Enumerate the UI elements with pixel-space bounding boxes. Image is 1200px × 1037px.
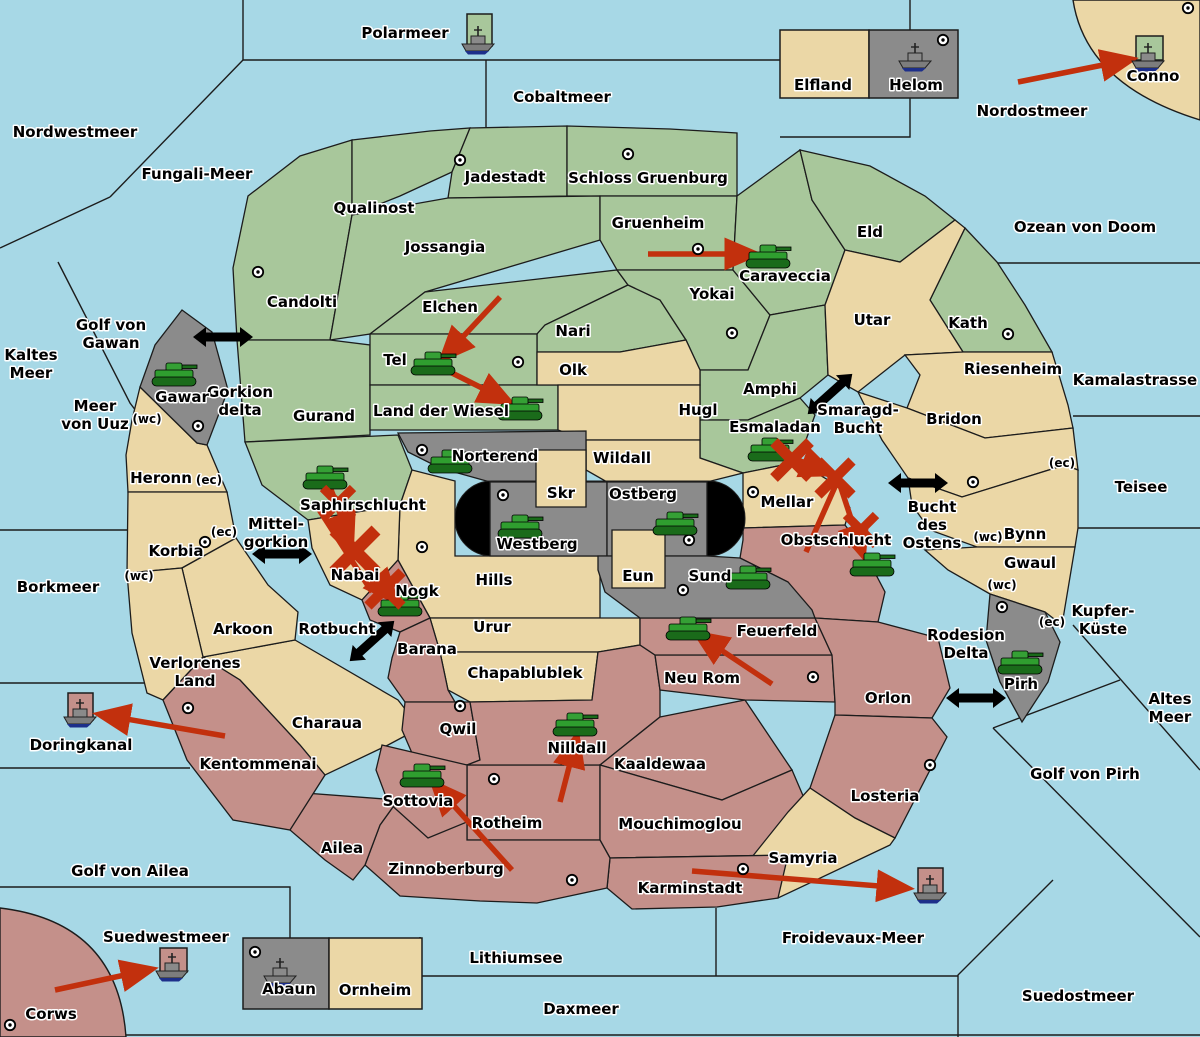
map-label: Gwaul: [1004, 554, 1056, 572]
map-label: KaltesMeer: [4, 346, 57, 382]
map-label: Zinnoberburg: [388, 860, 504, 878]
map-label: Mellar: [761, 493, 815, 511]
map-label: Kentommenai: [199, 755, 316, 773]
map-label: Utar: [854, 311, 891, 329]
map-label: Nabai: [331, 566, 380, 584]
map-label: Chapablublek: [467, 664, 583, 682]
map-label: Kaaldewaa: [614, 755, 706, 773]
map-label: Gawar: [155, 388, 209, 406]
map-label: Korbia: [148, 542, 203, 560]
coast-type-label: (wc): [973, 530, 1002, 544]
map-label: Rotheim: [472, 814, 543, 832]
city-marker: [455, 155, 465, 165]
coast-type-label: (ec): [211, 525, 237, 539]
map-label: Qwil: [440, 720, 477, 738]
territory-jadestadt[interactable]: [448, 126, 567, 198]
map-label: Norterend: [452, 447, 539, 465]
map-label: Tel: [383, 351, 407, 369]
map-label: Cobaltmeer: [513, 88, 611, 106]
map-label: Westberg: [496, 535, 577, 553]
map-label: Sund: [689, 567, 732, 585]
map-label: Amphi: [743, 380, 797, 398]
map-label: Rotbucht: [298, 620, 375, 638]
map-label: Kupfer-Küste: [1071, 602, 1134, 638]
map-label: Abaun: [262, 980, 316, 998]
coast-type-label: (wc): [132, 412, 161, 426]
world-map-svg: PolarmeerNordwestmeerFungali-MeerCobaltm…: [0, 0, 1200, 1037]
map-label: Orlon: [865, 689, 911, 707]
city-marker: [417, 445, 427, 455]
map-label: Fungali-Meer: [142, 165, 253, 183]
city-marker: [1183, 3, 1193, 13]
city-marker: [1003, 329, 1013, 339]
map-label: Urur: [473, 618, 511, 636]
city-marker: [738, 864, 748, 874]
map-label: Ailea: [321, 839, 363, 857]
map-label: Charaua: [292, 714, 362, 732]
map-label: Losteria: [851, 787, 920, 805]
map-label: Eun: [622, 567, 654, 585]
map-label: Sottovia: [383, 792, 454, 810]
map-label: Yokai: [688, 285, 734, 303]
map-label: AltesMeer: [1148, 690, 1191, 726]
map-label: Barana: [397, 640, 457, 658]
map-label: Kamalastrasse: [1073, 371, 1197, 389]
territory-gruenheim[interactable]: [600, 196, 737, 270]
coast-type-label: (wc): [124, 569, 153, 583]
map-label: Daxmeer: [543, 1000, 619, 1018]
map-label: Samyria: [769, 849, 838, 867]
map-label: Mouchimoglou: [618, 815, 741, 833]
map-label: Nilldall: [547, 739, 606, 757]
city-marker: [455, 701, 465, 711]
city-marker: [623, 149, 633, 159]
map-label: Lithiumsee: [469, 949, 562, 967]
map-label: Golf von Ailea: [71, 862, 189, 880]
map-label: Feuerfeld: [737, 622, 818, 640]
territory-urur[interactable]: [430, 618, 640, 652]
city-marker: [808, 672, 818, 682]
city-marker: [253, 267, 263, 277]
map-label: Bynn: [1004, 525, 1047, 543]
map-label: Gruenheim: [612, 214, 705, 232]
map-label: Qualinost: [334, 199, 415, 217]
city-marker: [727, 328, 737, 338]
coast-type-label: (wc): [987, 578, 1016, 592]
map-label: Nari: [555, 322, 590, 340]
city-marker: [678, 585, 688, 595]
map-label: Jossangia: [404, 238, 486, 256]
city-marker: [5, 1020, 15, 1030]
map-label: Jadestadt: [464, 168, 546, 186]
map-label: Karminstadt: [638, 879, 743, 897]
map-label: Riesenheim: [964, 360, 1062, 378]
map-label: Hills: [476, 571, 513, 589]
city-marker: [567, 875, 577, 885]
map-label: Suedostmeer: [1022, 987, 1135, 1005]
city-marker: [925, 760, 935, 770]
map-label: Ornheim: [339, 981, 411, 999]
city-marker: [183, 703, 193, 713]
map-label: Arkoon: [213, 620, 273, 638]
coast-type-label: (ec): [1039, 615, 1065, 629]
city-marker: [250, 947, 260, 957]
map-label: Nordwestmeer: [13, 123, 138, 141]
coast-type-label: (ec): [1049, 456, 1075, 470]
map-label: Nogk: [395, 582, 440, 600]
map-label: Suedwestmeer: [103, 928, 229, 946]
map-label: Golf von Pirh: [1030, 765, 1140, 783]
map-label: Obstschlucht: [781, 531, 892, 549]
map-label: Neu Rom: [664, 669, 740, 687]
map-label: Olk: [559, 361, 588, 379]
map-label: Borkmeer: [17, 578, 100, 596]
map-label: Pirh: [1004, 675, 1038, 693]
city-marker: [417, 542, 427, 552]
map-label: Heronn: [130, 469, 192, 487]
coast-type-label: (ec): [196, 473, 222, 487]
map-label: Helom: [889, 76, 943, 94]
map-label: Saphirschlucht: [300, 496, 426, 514]
city-marker: [693, 244, 703, 254]
map-label: Ostberg: [609, 485, 677, 503]
map-label: Nordostmeer: [977, 102, 1088, 120]
city-marker: [938, 35, 948, 45]
map-label: Kath: [948, 314, 988, 332]
city-marker: [748, 487, 758, 497]
map-label: Gurand: [293, 407, 355, 425]
game-map: PolarmeerNordwestmeerFungali-MeerCobaltm…: [0, 0, 1200, 1037]
map-label: Schloss Gruenburg: [568, 169, 728, 187]
city-marker: [193, 421, 203, 431]
city-marker: [968, 477, 978, 487]
map-label: Esmaladan: [729, 418, 821, 436]
map-label: Land der Wiesel: [373, 402, 509, 420]
map-label: Eld: [857, 223, 883, 241]
city-marker: [498, 490, 508, 500]
map-label: Froidevaux-Meer: [782, 929, 925, 947]
map-label: Corws: [25, 1005, 77, 1023]
map-label: Elchen: [422, 298, 478, 316]
map-label: Golf vonGawan: [76, 316, 146, 352]
map-label: Teisee: [1115, 478, 1168, 496]
map-label: Bridon: [926, 410, 982, 428]
city-marker: [513, 357, 523, 367]
map-label: Elfland: [794, 76, 852, 94]
map-label: Caraveccia: [739, 267, 831, 285]
map-label: Doringkanal: [30, 736, 133, 754]
city-marker: [684, 535, 694, 545]
map-label: Candolti: [267, 293, 337, 311]
map-label: Wildall: [593, 449, 651, 467]
city-marker: [997, 602, 1007, 612]
map-label: Hugl: [678, 401, 717, 419]
map-label: Ozean von Doom: [1014, 218, 1156, 236]
map-label: Conno: [1127, 67, 1180, 85]
city-marker: [489, 774, 499, 784]
map-label: Polarmeer: [361, 24, 449, 42]
map-label: Mittel-gorkion: [244, 515, 309, 551]
map-label: Skr: [547, 484, 576, 502]
